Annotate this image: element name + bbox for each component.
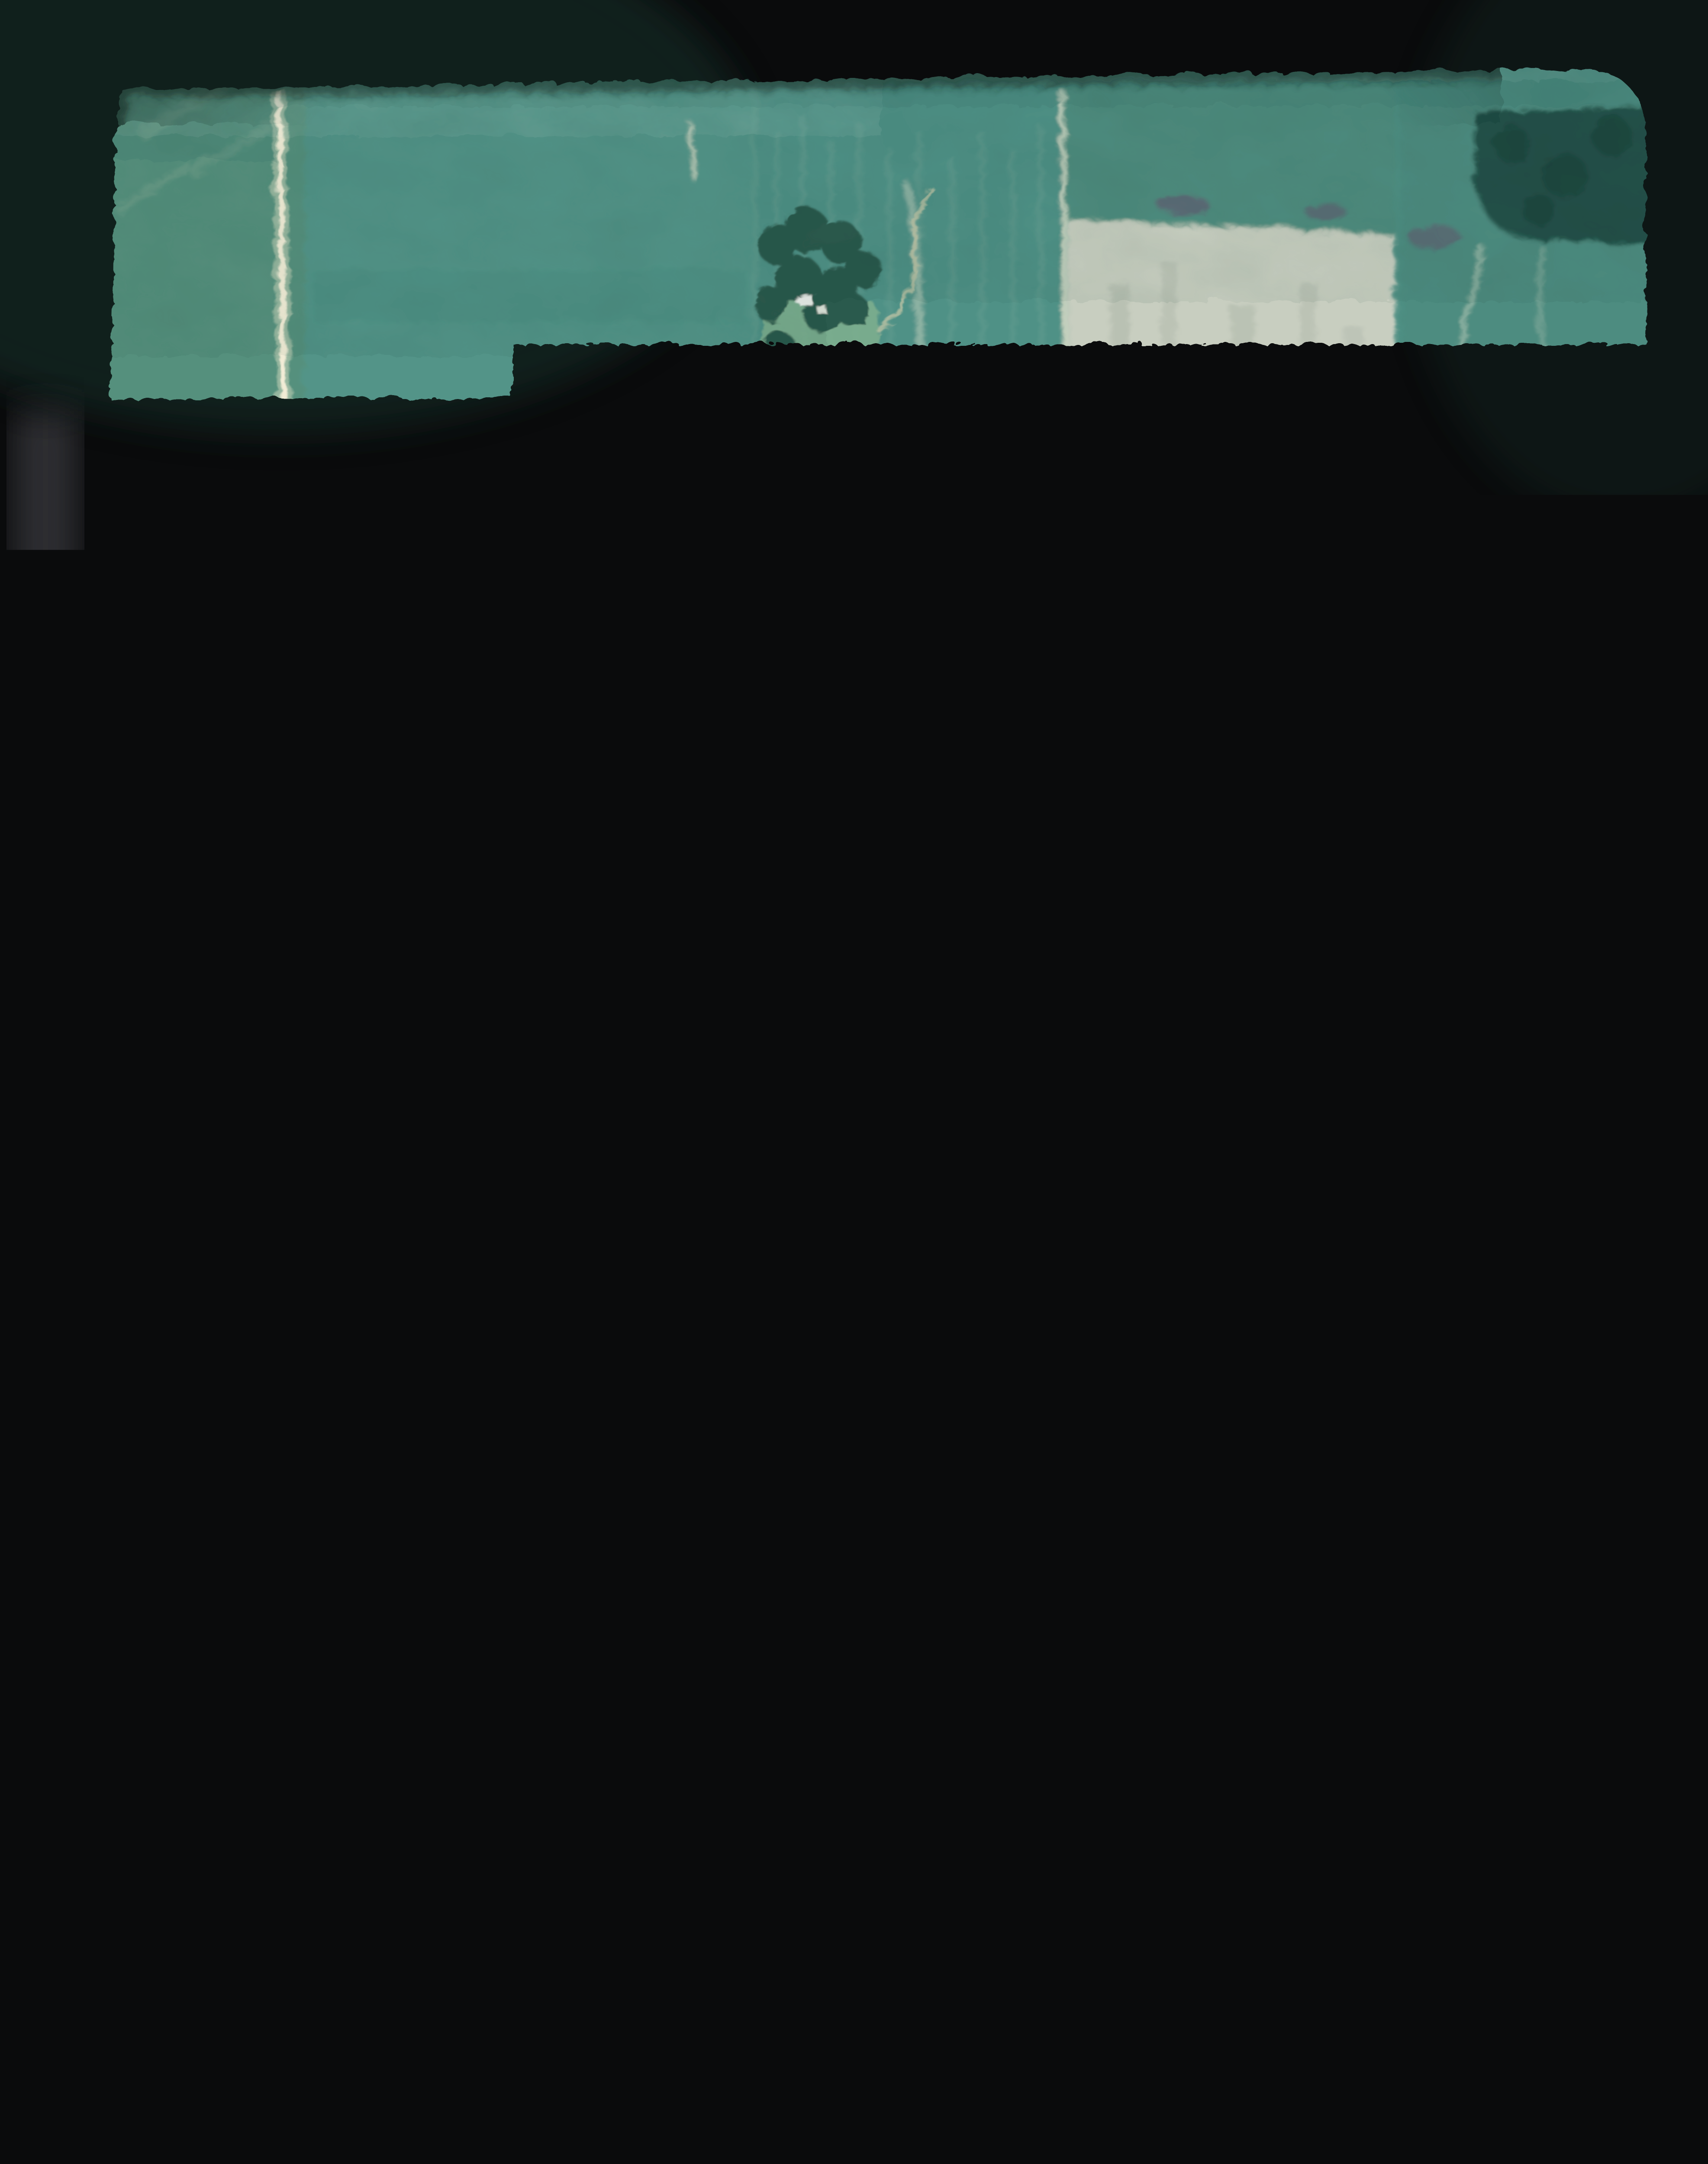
dust-speck xyxy=(531,1371,535,1375)
vignette xyxy=(52,43,1671,2164)
dust-speck xyxy=(425,205,429,209)
dust-speck xyxy=(1176,1673,1179,1677)
aerial-photo-slide xyxy=(0,0,1708,2164)
dust-speck xyxy=(917,1443,922,1447)
mount-gray-strip xyxy=(13,411,78,822)
film-artifacts xyxy=(52,43,1671,2164)
dust-speck xyxy=(739,1158,744,1163)
dust-speck xyxy=(327,1539,331,1543)
slide-scan xyxy=(0,0,1708,2164)
dust-speck xyxy=(574,375,579,380)
dust-speck xyxy=(965,1752,969,1756)
dust-speck xyxy=(262,494,267,499)
photograph xyxy=(52,43,1671,2164)
dust-speck xyxy=(1324,617,1329,622)
dust-speck xyxy=(137,328,142,332)
dust-speck xyxy=(1499,1088,1505,1093)
dust-speck xyxy=(1131,916,1135,921)
dust-speck xyxy=(1067,457,1071,461)
